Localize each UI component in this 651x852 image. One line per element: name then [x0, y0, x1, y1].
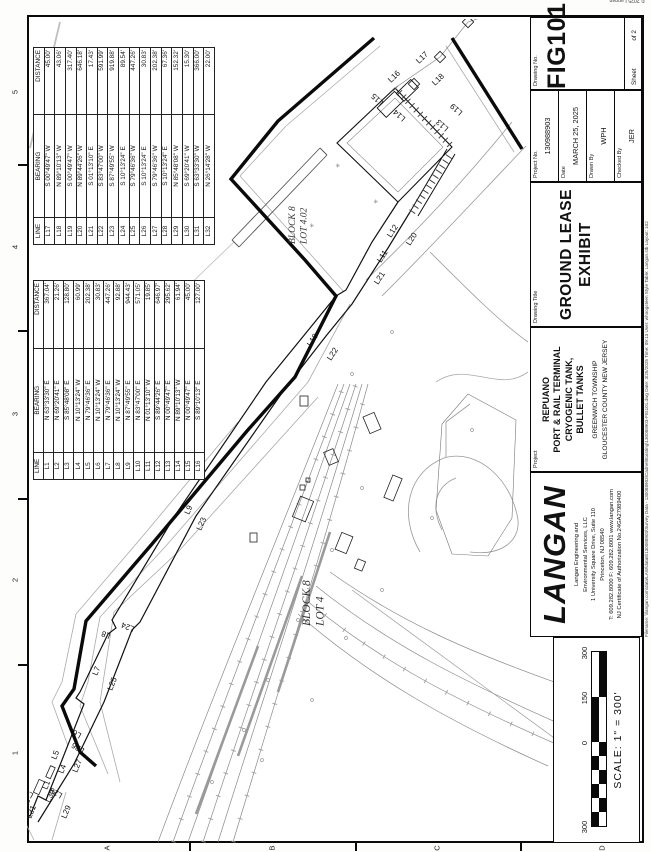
table-row: L25S 79°46'36" W447.26' — [129, 48, 140, 245]
scale-segment — [599, 770, 606, 784]
map-line-label: L12 — [385, 223, 400, 240]
table-row: L15N 00°49'47" E45.00' — [184, 281, 194, 480]
line-table-1: LINEBEARINGDISTANCEL1N 63°33'30" E367.04… — [33, 280, 205, 480]
scale-label: 150 — [580, 692, 589, 705]
table-row: L27S 79°46'36" W202.38' — [151, 48, 162, 245]
roads — [366, 122, 528, 556]
table-row: L8N 10°13'24" W92.88' — [114, 281, 124, 480]
map-line-label: L11 — [375, 248, 390, 264]
table-row: L24S 10°13'24" E89.54' — [119, 48, 130, 245]
drawing-no-label: Drawing No. — [533, 55, 539, 86]
table-header: LINEBEARINGDISTANCE — [34, 48, 45, 245]
project-name-line: PORT & RAIL TERMINAL — [552, 328, 563, 471]
table-row: L29N 85°48'08" W152.32' — [172, 48, 183, 245]
zone-letter: B — [268, 845, 277, 850]
map-line-label: L14 — [391, 107, 407, 123]
info-row: Project No.130988903 — [531, 91, 559, 181]
drawing-title-line: GROUND LEASE — [557, 183, 576, 326]
zone-tick — [189, 843, 191, 851]
table-header: LINEBEARINGDISTANCE — [34, 281, 44, 480]
info-label: Project No. — [533, 150, 539, 178]
address-line: Environmental Services, LLC — [582, 473, 591, 636]
map-line-label: L3 — [27, 788, 35, 801]
address-line: NJ Certificate of Authorization No.24GA2… — [616, 473, 625, 636]
scale-segment — [592, 812, 599, 826]
info-row: Checked ByJER — [615, 91, 643, 181]
table-row: L1N 63°33'30" E367.04' — [44, 281, 54, 480]
zone-tick — [355, 843, 357, 851]
map-line-label: L20 — [404, 231, 419, 248]
table-row: L16S 89°10'13" E127.00' — [194, 281, 204, 480]
info-label: Checked By — [617, 148, 623, 178]
scale-segment — [599, 812, 606, 826]
map-line-label: L8 — [100, 629, 112, 641]
project-name-line: BULLET TANKS — [575, 328, 586, 471]
table-row: L28S 10°13'24" E67.36' — [161, 48, 172, 245]
info-value: JER — [627, 91, 636, 181]
block-lot-label: BLOCK 8LOT 4 — [301, 580, 327, 627]
zone-number: 3 — [11, 412, 20, 416]
drawing-title-block: Drawing Title GROUND LEASEEXHIBIT — [530, 182, 642, 327]
table-row: L19S 00°49'47" W317.40' — [65, 48, 76, 245]
table-row: L31S 63°33'30" W366.00' — [193, 48, 204, 245]
info-value: MARCH 25, 2025 — [571, 91, 580, 181]
info-value: WPH — [599, 91, 608, 181]
project-name-line: CRYOGENIC TANK, — [564, 328, 575, 471]
line-table-2: LINEBEARINGDISTANCEL17S 00°49'47" W45.00… — [33, 47, 215, 245]
info-row: Drawn ByWPH — [587, 91, 615, 181]
scale-segment — [592, 652, 599, 697]
address-line: T: 609.282.8000 F: 609.282.8001 www.lang… — [608, 473, 617, 636]
zone-number: 4 — [11, 245, 20, 249]
svg-text:✳: ✳ — [335, 163, 342, 168]
table-row: L23S 87°49'55" W919.88' — [108, 48, 119, 245]
map-line-label: L22 — [325, 346, 340, 363]
info-label: Drawn By — [589, 154, 595, 178]
map-line-label: L25 — [106, 675, 120, 691]
drawing-sheet: 12345ABCD — [0, 0, 651, 852]
pier-structure — [232, 19, 492, 247]
zone-tick — [18, 665, 27, 667]
scale-segment — [592, 756, 599, 770]
map-line-label: L15 — [369, 91, 385, 107]
map-line-label: L4 — [57, 763, 69, 775]
scale-segment — [592, 742, 599, 756]
scale-segment — [592, 784, 599, 798]
address-line: Langan Engineering and — [573, 473, 582, 636]
project-name-line: REPUANO — [541, 328, 552, 471]
block-lot-label: BLOCK 8LOT 4.02 — [288, 206, 310, 245]
scale-segment — [592, 798, 599, 812]
map-line-label: L24 — [119, 620, 135, 634]
scale-segment — [599, 784, 606, 798]
drawing-title: GROUND LEASEEXHIBIT — [557, 183, 596, 326]
map-line-label: L7 — [91, 665, 103, 677]
drawing-number: FIG101 — [543, 18, 572, 89]
table-row: L7N 79°46'36" E447.26' — [104, 281, 114, 480]
zone-tick — [520, 843, 522, 851]
zone-number: 1 — [11, 751, 20, 755]
table-row: L14N 89°10'13" W61.94' — [174, 281, 184, 480]
drawing-title-label: Drawing Title — [533, 291, 539, 323]
scale-label: 300 — [580, 647, 589, 660]
table-row: L18N 89°10'13" W43.06' — [55, 48, 66, 245]
info-row: DateMARCH 25, 2025 — [559, 91, 587, 181]
sheet-of: of 2 — [631, 30, 638, 41]
scale-segment — [599, 742, 606, 756]
scale-segment — [599, 652, 606, 697]
table-row: L32N 26°14'28" W22.00' — [204, 48, 215, 245]
zone-tick — [18, 331, 27, 333]
scale-label: 300 — [580, 821, 589, 834]
scale-segment — [599, 798, 606, 812]
table-row: L3S 85°48'08" E128.80' — [64, 281, 74, 480]
table-row: L30S 69°20'41" W15.30' — [182, 48, 193, 245]
map-line-label: L26 — [69, 740, 86, 755]
table-row: L4N 10°13'24" W60.99' — [74, 281, 84, 480]
survey-marks: ✳✳✳ — [309, 163, 380, 228]
railroad-sidings — [196, 532, 330, 814]
map-line-label: L23 — [195, 515, 209, 531]
info-label: Date — [561, 166, 567, 178]
sheet-label: Sheet — [631, 68, 638, 85]
map-line-label: L18 — [430, 71, 446, 87]
map-line-label: L19 — [448, 101, 464, 117]
scale-segment — [592, 697, 599, 742]
table-row: L2N 69°20'41" E21.26' — [54, 281, 64, 480]
location-line: GREENWICH TOWNSHIP — [591, 328, 601, 471]
address-line: 1 University Square Drive, Suite 110 — [590, 473, 599, 636]
svg-text:✳: ✳ — [309, 223, 316, 228]
plot-info-text: Filename: \\langan.com\data\LAW\data8\13… — [644, 17, 649, 637]
langan-logo-block: LANGAN Langan Engineering andEnvironment… — [530, 472, 642, 637]
divider — [624, 18, 625, 89]
zone-tick — [18, 165, 27, 167]
langan-address: Langan Engineering andEnvironmental Serv… — [573, 473, 625, 636]
map-line-label: L5 — [50, 749, 62, 761]
info-value: 130988903 — [543, 91, 552, 181]
scale-segment — [599, 756, 606, 770]
table-row: L20N 89°44'26" W646.18' — [76, 48, 87, 245]
zone-number: 2 — [11, 578, 20, 582]
table-row: L22S 83°47'00" W591.99' — [97, 48, 108, 245]
graphic-scale-bar — [591, 651, 607, 827]
zone-letter: A — [103, 845, 112, 850]
table-row: L17S 00°49'47" W45.00' — [44, 48, 55, 245]
svg-text:✳: ✳ — [373, 199, 380, 204]
table-row: L13N 00°49'47" E295.62' — [164, 281, 174, 480]
zone-letter: D — [598, 845, 607, 850]
zone-tick — [18, 499, 27, 501]
scale-segment — [592, 770, 599, 784]
scale-label: 0 — [580, 741, 589, 745]
table-row: L21S 01°13'10" E17.43' — [87, 48, 98, 245]
map-line-label: L27 — [71, 757, 85, 773]
scale-text: SCALE: 1" = 300' — [612, 638, 624, 842]
drawing-number-block: Drawing No. FIG101 Sheet of 2 — [530, 17, 642, 90]
table-row: L9N 87°49'55" E944.43' — [124, 281, 134, 480]
address-line: Princeton, NJ 08540 — [599, 473, 608, 636]
copyright-text: © 2025 Langan — [609, 0, 645, 3]
project-block: Project REPUANOPORT & RAIL TERMINALCRYOG… — [530, 327, 642, 472]
table-row: L6N 10°13'24" W30.83' — [94, 281, 104, 480]
location-line: GLOUCESTER COUNTY NEW JERSEY — [601, 328, 611, 471]
map-line-label: L16 — [386, 68, 402, 84]
project-location: GREENWICH TOWNSHIPGLOUCESTER COUNTY NEW … — [591, 328, 611, 471]
langan-logo: LANGAN — [539, 473, 570, 636]
drawing-info-block: Project No.130988903DateMARCH 25, 2025Dr… — [530, 90, 642, 182]
zone-number: 5 — [11, 90, 20, 94]
table-row: L11N 01°13'10" W19.85' — [144, 281, 154, 480]
table-row: L12S 89°44'26" E646.97' — [154, 281, 164, 480]
table-row: L26S 10°13'24" E30.83' — [140, 48, 151, 245]
project-label: Project — [533, 451, 539, 468]
map-line-label: L17 — [414, 49, 430, 65]
table-row: L10N 83°47'00" E571.05' — [134, 281, 144, 480]
table-row: L5N 79°46'36" E202.38' — [84, 281, 94, 480]
landscape-drawing: 12345ABCD — [0, 0, 651, 852]
utility-symbols — [211, 331, 474, 784]
scale-bar-block: 3000150300 SCALE: 1" = 300' — [553, 637, 640, 843]
scale-segment — [599, 697, 606, 742]
project-name: REPUANOPORT & RAIL TERMINALCRYOGENIC TAN… — [541, 328, 586, 471]
drawing-title-line: EXHIBIT — [576, 183, 595, 326]
zone-letter: C — [433, 845, 442, 850]
